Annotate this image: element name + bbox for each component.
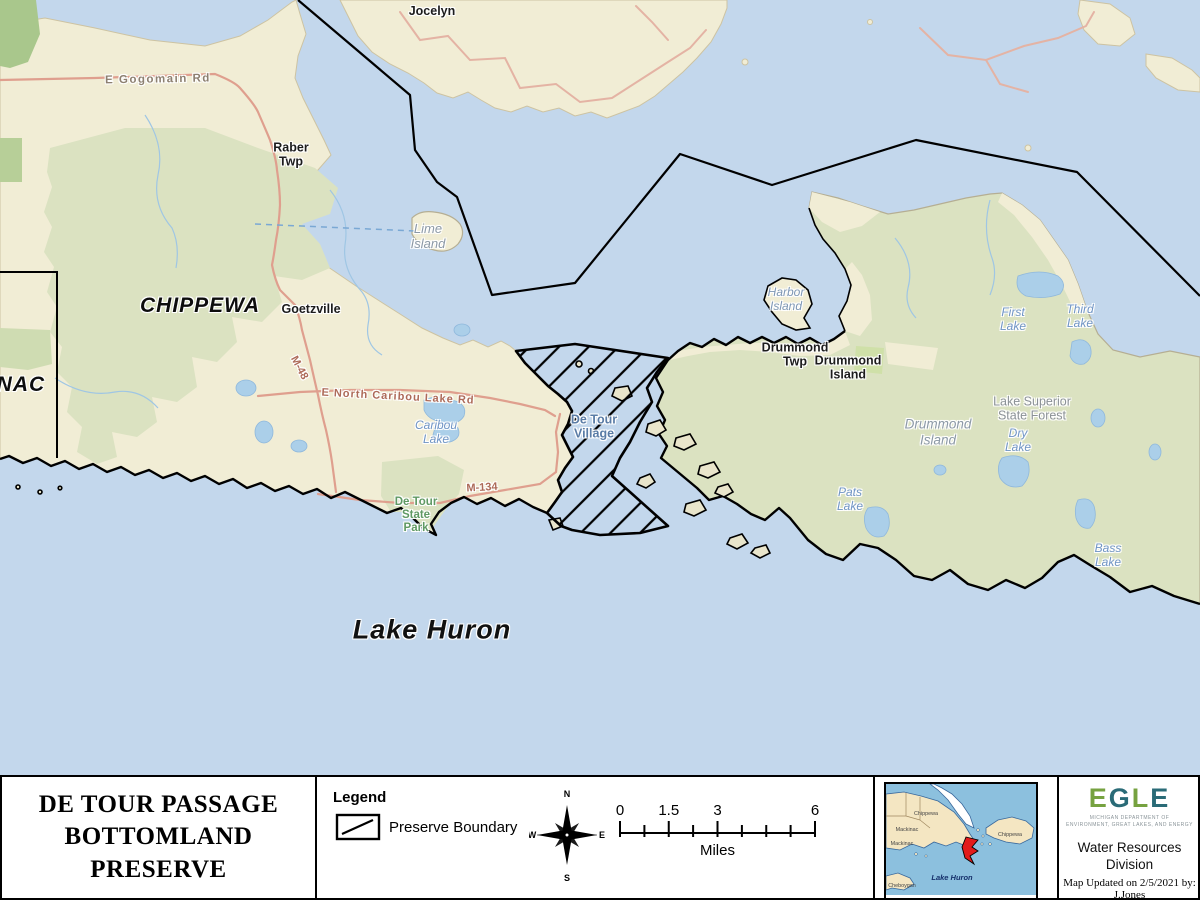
legend-block: Legend Preserve Boundary N S W E [317, 777, 873, 898]
egle-logo: EGLE [1059, 783, 1200, 814]
compass-n: N [564, 789, 571, 799]
map-canvas: Jocelyn E Gogomain Rd Raber Twp CHIPPEWA… [0, 0, 1200, 775]
legend-item-label: Preserve Boundary [389, 819, 517, 836]
preserve-boundary-swatch [335, 813, 381, 841]
egle-tagline-1: MICHIGAN DEPARTMENT OF [1059, 815, 1200, 821]
map-updated-note: Map Updated on 2/5/2021 by: [1059, 877, 1200, 889]
egle-tagline-2: ENVIRONMENT, GREAT LAKES, AND ENERGY [1059, 822, 1200, 828]
drummond-bright-green [854, 346, 884, 374]
egle-letter: E [1089, 783, 1109, 813]
dark-forest-patch [0, 138, 22, 182]
compass-rose: N S W E [529, 783, 605, 887]
scale-bar: 0 1.5 3 6 Miles [605, 791, 845, 871]
inset-map: Chippewa Mackinac Mackinac Chippewa Cheb… [884, 782, 1038, 900]
forest-patch [0, 328, 52, 370]
compass-w: W [529, 830, 537, 840]
footer-bar: DE TOUR PASSAGE BOTTOMLAND PRESERVE Lege… [0, 775, 1200, 900]
division-name: Water Resources Division [1059, 840, 1200, 874]
map-geography [0, 0, 1200, 775]
scale-3: 3 [713, 802, 721, 819]
legend-heading: Legend [333, 789, 386, 806]
inset-label-lake-huron: Lake Huron [931, 873, 973, 882]
egle-letter: L [1132, 783, 1151, 813]
islet [868, 20, 873, 25]
egle-letter: G [1109, 783, 1132, 813]
scale-1-5: 1.5 [658, 802, 679, 819]
agency-block: EGLE MICHIGAN DEPARTMENT OF ENVIRONMENT,… [1059, 777, 1200, 898]
inset-label-chippewa-e: Chippewa [998, 832, 1022, 838]
inset-block: Chippewa Mackinac Mackinac Chippewa Cheb… [875, 777, 1057, 898]
inset-label-mackinac-s: Mackinac [891, 841, 914, 847]
map-title: DE TOUR PASSAGE BOTTOMLAND PRESERVE [39, 789, 279, 887]
map-author: J.Jones [1059, 889, 1200, 900]
scale-0: 0 [616, 802, 624, 819]
scale-unit: Miles [700, 842, 735, 859]
egle-letter: E [1150, 783, 1170, 813]
scale-6: 6 [811, 802, 819, 819]
map-sheet: Jocelyn E Gogomain Rd Raber Twp CHIPPEWA… [0, 0, 1200, 900]
title-block: DE TOUR PASSAGE BOTTOMLAND PRESERVE [2, 777, 315, 898]
inset-label-cheboygan: Cheboygan [888, 883, 916, 889]
compass-s: S [564, 873, 570, 883]
islet [742, 59, 748, 65]
inset-label-mackinac: Mackinac [896, 827, 919, 833]
islet [1025, 145, 1031, 151]
inset-label-chippewa-n: Chippewa [914, 811, 938, 817]
